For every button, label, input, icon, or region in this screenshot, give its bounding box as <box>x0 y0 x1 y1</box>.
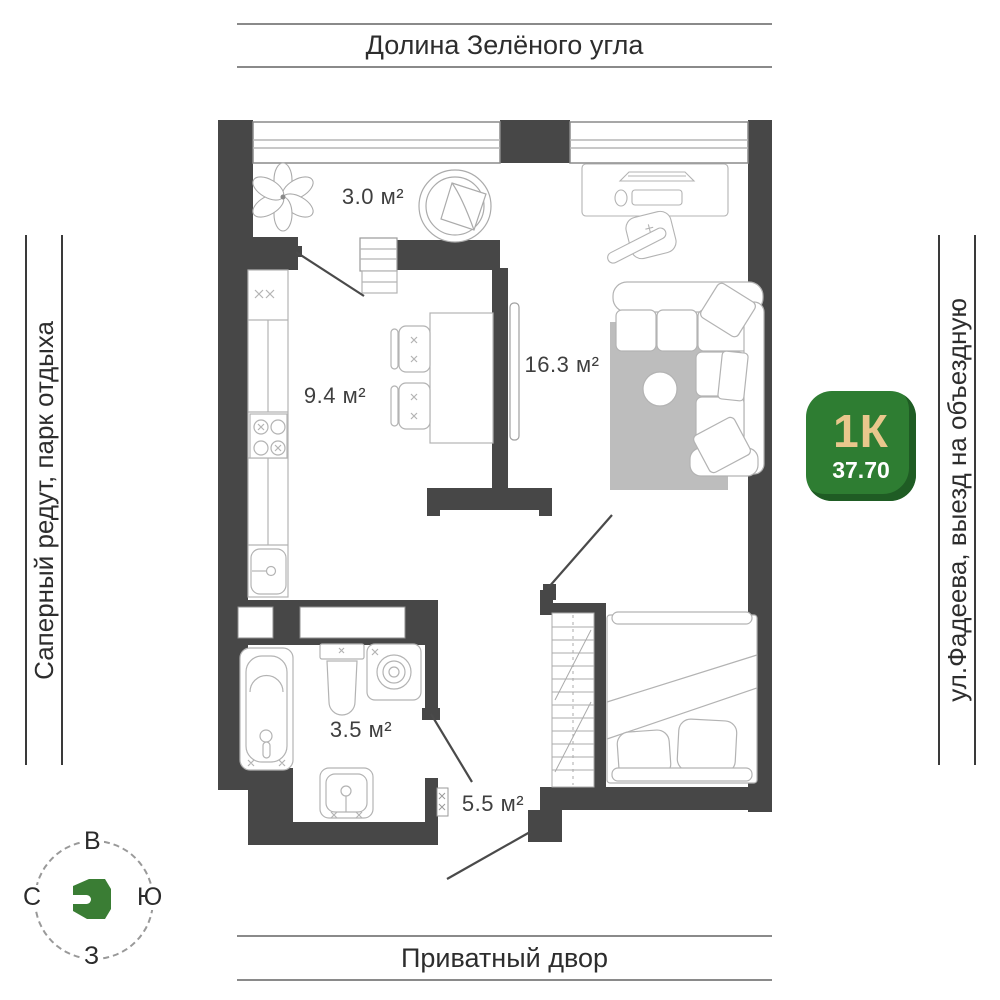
utility-riser <box>437 788 448 816</box>
bathroom-sink <box>320 768 373 818</box>
bed-pillow <box>677 719 738 774</box>
living-window <box>570 122 748 163</box>
plant-icon <box>249 163 317 231</box>
balcony-door-swing <box>296 252 364 296</box>
living-area-label: 16.3 м² <box>525 352 600 377</box>
balcony-window <box>253 122 500 163</box>
sofa-pillow <box>718 351 749 401</box>
hallway-area-label: 5.5 м² <box>462 791 524 816</box>
bathtub <box>240 648 293 770</box>
tv <box>510 303 519 440</box>
floorplan-page: { "surroundings": { "top": "Долина Зелён… <box>0 0 1000 1000</box>
dining-chair <box>391 383 430 429</box>
bathroom-door-swing <box>431 714 472 782</box>
washing-machine <box>367 644 421 700</box>
entrance-door-swing <box>447 832 530 879</box>
papasan-chair <box>419 170 491 242</box>
coffee-table <box>643 372 677 406</box>
kitchen-sink <box>251 549 286 594</box>
dining-table <box>430 313 493 443</box>
bed <box>607 612 757 783</box>
living-door-swing <box>548 515 612 588</box>
wall-ducts <box>238 607 405 638</box>
bathroom-area-label: 3.5 м² <box>330 717 392 742</box>
balcony-inner-window <box>360 238 397 293</box>
desk-chair <box>606 209 679 265</box>
desk <box>582 164 728 216</box>
dining-chair <box>391 326 430 372</box>
wardrobe <box>552 613 594 787</box>
balcony-area-label: 3.0 м² <box>342 184 404 209</box>
floor-plan: 3.0 м² 9.4 м² 16.3 м² 3.5 м² 5.5 м² <box>0 0 1000 1000</box>
stove <box>250 414 287 458</box>
toilet <box>320 644 364 715</box>
kitchen-area-label: 9.4 м² <box>304 383 366 408</box>
